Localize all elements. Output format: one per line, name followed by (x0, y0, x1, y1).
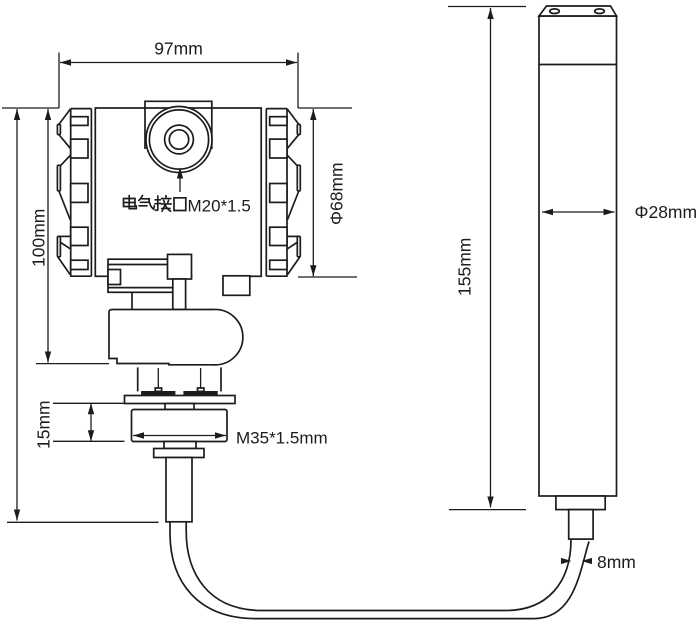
svg-text:M35*1.5mm: M35*1.5mm (236, 429, 328, 448)
svg-text:8mm: 8mm (597, 552, 636, 572)
svg-text:97mm: 97mm (154, 39, 203, 59)
svg-text:M20*1.5: M20*1.5 (188, 197, 251, 216)
svg-text:Φ68mm: Φ68mm (327, 162, 347, 225)
svg-text:155mm: 155mm (455, 238, 475, 296)
svg-text:Φ28mm: Φ28mm (635, 202, 698, 222)
svg-text:15mm: 15mm (34, 400, 54, 449)
svg-text:100mm: 100mm (29, 209, 49, 267)
